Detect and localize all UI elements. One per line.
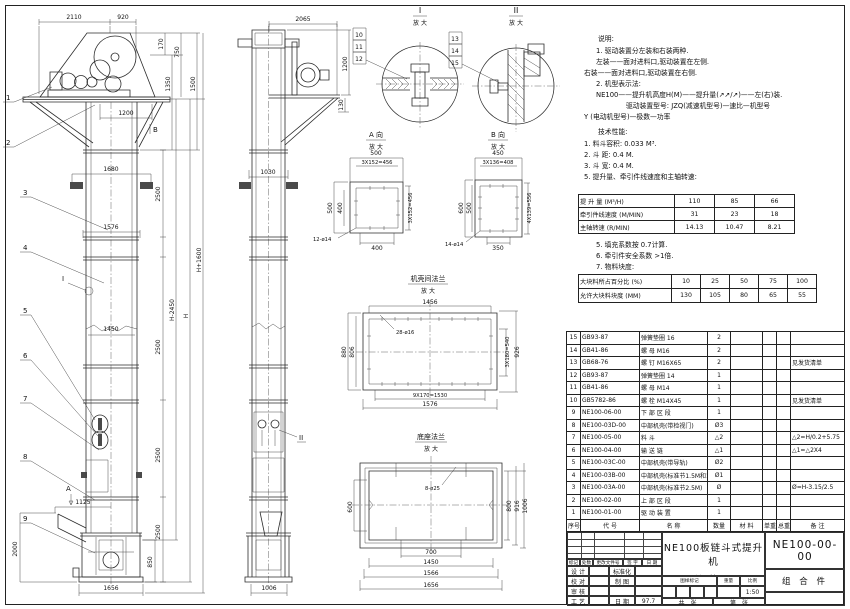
view-a-label: A [66, 485, 71, 493]
balloon: 8 [23, 453, 27, 461]
bom-unit-weight [763, 369, 777, 382]
bom-qty: Ø3 [708, 419, 731, 432]
dim-label: H-2450 [169, 299, 176, 321]
bom-qty: 2 [708, 332, 731, 345]
bom-total-weight [777, 444, 791, 457]
bom-qty: 2 [708, 357, 731, 370]
bom-material [731, 394, 763, 407]
bom-qty: 1 [708, 407, 731, 420]
detail-scale: 放 大 [424, 445, 438, 453]
revision-header: 更改文件号 [593, 559, 623, 566]
bom-total-weight [777, 407, 791, 420]
performance-row: 提 升 量 (M³/H) 110 85 66 [579, 195, 795, 208]
bom-name: 输 送 链 [640, 444, 708, 457]
bom-material [731, 382, 763, 395]
dim-label: 170 [158, 38, 165, 50]
mark-box [704, 586, 717, 598]
role-date: 日 期 [609, 596, 635, 606]
bom-remark [791, 494, 845, 507]
detail-1: I 放 大 10 11 12 [353, 6, 464, 128]
note-line: 驱动装置型号: JZQ(减速机型号)—速比—机型号 [584, 101, 842, 112]
bom-unit-weight [763, 332, 777, 345]
bom-qty: 1 [708, 507, 731, 520]
role-process: 工 艺 [567, 596, 589, 606]
dim-label: 2500 [155, 447, 162, 462]
tech-heading: 技术性能: [598, 127, 627, 138]
bom-name: 螺 钉 M16X65 [640, 357, 708, 370]
bom-code: NE100-05-00 [581, 432, 640, 445]
role-design: 设 计 [567, 566, 589, 576]
bom-total-weight [777, 369, 791, 382]
dim-label: 1006 [261, 585, 276, 592]
lump-value: 25 [701, 275, 730, 289]
dim-label: 3X136=408 [482, 160, 513, 166]
bom-material [731, 432, 763, 445]
bom-qty: △1 [708, 444, 731, 457]
bom-total-weight [777, 344, 791, 357]
detail-title: II [514, 6, 519, 15]
bom-unit-weight [763, 344, 777, 357]
bom-remark: △1=△2X4 [791, 444, 845, 457]
bom-unit-weight [763, 457, 777, 470]
bom-header-row: 序号 代 号 名 称 数量 材 料 单重 总重 备 注 [567, 519, 845, 532]
bom-no: 3 [567, 482, 581, 495]
dim-label: 1656 [423, 582, 438, 589]
dim-label: 9X170=1530 [413, 393, 447, 399]
scale-label: 比例 [740, 576, 765, 586]
balloon: 1 [6, 94, 10, 102]
dim-label: 1576 [103, 224, 118, 231]
note-line: 右装——面对进料口,驱动装置在右侧. [584, 68, 842, 79]
dim-label: 2500 [155, 524, 162, 539]
perf-label: 主轴转速 (R/MIN) [579, 221, 675, 234]
bom-code: GB5782-86 [581, 394, 640, 407]
dim-label: 750 [174, 46, 181, 58]
bom-material [731, 507, 763, 520]
side-view: 2065 1200 130 1030 1006 II [238, 16, 351, 596]
balloon: 5 [23, 307, 27, 315]
bom-code: NE100-06-00 [581, 407, 640, 420]
bom-unit-weight [763, 394, 777, 407]
perf-value: 23 [715, 208, 755, 221]
bom-qty: Ø1 [708, 469, 731, 482]
lump-value: 55 [788, 289, 817, 303]
balloon: 13 [451, 36, 459, 43]
bom-code: NE100-03C-00 [581, 457, 640, 470]
dim-label: 500 [370, 150, 382, 157]
dim-label: 600 [347, 501, 354, 513]
bom-no: 5 [567, 457, 581, 470]
perf-value: 110 [675, 195, 715, 208]
note-line: 左装——面对进料口,驱动装置在左侧. [584, 57, 842, 68]
bom-no: 2 [567, 494, 581, 507]
role-draft: 制 图 [609, 576, 635, 586]
sign-cell [635, 586, 662, 596]
bom-material [731, 357, 763, 370]
bom-total-weight [777, 332, 791, 345]
bom-material [731, 469, 763, 482]
sign-cell [589, 566, 609, 576]
dim-label: 2065 [295, 16, 310, 23]
bom-header: 序号 [567, 519, 581, 532]
bom-name: 弹簧垫圈 14 [640, 369, 708, 382]
detail-title: 底座法兰 [417, 432, 445, 441]
note-line: 5. 填充系数按 0.7计算. [596, 240, 673, 251]
bom-total-weight [777, 432, 791, 445]
bom-header: 代 号 [581, 519, 640, 532]
note-line: 6. 牵引件安全系数 >1倍. [596, 251, 673, 262]
weight-value [717, 586, 740, 598]
dim-label: 1500 [190, 76, 197, 91]
balloon: 4 [23, 244, 28, 252]
bom-material [731, 332, 763, 345]
performance-row: 主轴转速 (R/MIN) 14.13 10.47 8.21 [579, 221, 795, 234]
bom-total-weight [777, 507, 791, 520]
role-standardize: 标准化 [609, 566, 635, 576]
dim-label: 450 [492, 150, 504, 157]
lump-label: 允许大块料块度 (MM) [579, 289, 672, 303]
dim-label: 12-ø14 [313, 237, 332, 243]
dim-label: 1450 [423, 559, 438, 566]
tech-list-2: 5. 填充系数按 0.7计算.6. 牵引件安全系数 >1倍.7. 物料块度: [596, 240, 673, 273]
dim-label: 400 [337, 202, 344, 214]
perf-value: 14.13 [675, 221, 715, 234]
bom-material [731, 494, 763, 507]
revision-header: 标记 [567, 559, 580, 566]
dim-label: 14-ø14 [445, 242, 464, 248]
dim-label: 1200 [342, 56, 349, 71]
bom-name: 弹簧垫圈 16 [640, 332, 708, 345]
dim-label: 1450 [103, 326, 118, 333]
mark-label: 图样标记 [662, 576, 717, 586]
bom-row: 1 NE100-01-00 驱 动 装 置 1 [567, 507, 845, 520]
balloon: 2 [6, 139, 10, 147]
view-title: A 向 [369, 130, 383, 139]
bom-remark: △2=H/0.2+5.75 [791, 432, 845, 445]
dim-label: 1006 [522, 498, 529, 513]
bom-total-weight [777, 457, 791, 470]
lump-value: 50 [730, 275, 759, 289]
bom-code: GB68-76 [581, 357, 640, 370]
bom-qty: △2 [708, 432, 731, 445]
lump-value: 130 [672, 289, 701, 303]
dim-label: 1656 [103, 585, 118, 592]
dim-label: 806 [349, 346, 356, 358]
notes-list: 1. 驱动装置分左装和右装两种.左装——面对进料口,驱动装置在左侧.右装——面对… [584, 46, 842, 123]
balloon: 14 [451, 48, 459, 55]
perf-label: 提 升 量 (M³/H) [579, 195, 675, 208]
note-line: 5. 提升量、牵引件线速度和主轴转速: [584, 172, 842, 183]
dim-label: 28-ø16 [396, 330, 414, 336]
detail-ii-marker-label: II [299, 434, 303, 442]
lump-row: 允许大块料块度 (MM) 130 105 80 65 55 [579, 289, 817, 303]
bom-no: 4 [567, 469, 581, 482]
bom-material [731, 444, 763, 457]
bom-qty: 1 [708, 494, 731, 507]
balloon: 3 [23, 189, 27, 197]
bom-header: 名 称 [640, 519, 708, 532]
bom-no: 11 [567, 382, 581, 395]
bom-qty: 1 [708, 382, 731, 395]
balloon: 15 [451, 60, 459, 67]
bom-code: NE100-03B-00 [581, 469, 640, 482]
bom-qty: Ø2 [708, 457, 731, 470]
drawing-sheet: 2110 920 170 750 1350 1500 1200 1680 250… [0, 0, 850, 609]
dim-label: 800 [506, 500, 513, 512]
perf-value: 8.21 [755, 221, 795, 234]
perf-value: 66 [755, 195, 795, 208]
bom-code: NE100-02-00 [581, 494, 640, 507]
dim-label: 2110 [66, 14, 81, 21]
bom-remark [791, 332, 845, 345]
bom-qty: 1 [708, 369, 731, 382]
bom-unit-weight [763, 482, 777, 495]
drawing-title-line1: NE100板链斗式提升机 [663, 540, 764, 568]
note-line: 3. 斗 宽: 0.4 M. [584, 161, 842, 172]
bom-qty: 1 [708, 394, 731, 407]
sign-cell [635, 566, 662, 576]
lump-row: 大块料所占百分比 (%) 10 25 50 75 100 [579, 275, 817, 289]
bom-remark [791, 369, 845, 382]
sheet-number: 第 张 [713, 598, 765, 606]
bom-total-weight [777, 482, 791, 495]
balloon: 7 [23, 395, 27, 403]
bom-row: 13 GB68-76 螺 钉 M16X65 2 见发货清单 [567, 357, 845, 370]
view-title: B 向 [491, 130, 505, 139]
dim-label: H [183, 314, 190, 319]
bom-no: 14 [567, 344, 581, 357]
dim-label: 1566 [423, 570, 438, 577]
bom-total-weight [777, 419, 791, 432]
sign-cell [589, 576, 609, 586]
bom-row: 11 GB41-86 螺 母 M14 1 [567, 382, 845, 395]
bom-remark [791, 507, 845, 520]
bom-name: 中部机壳(标准节2.5M) [640, 482, 708, 495]
note-line: 1. 料斗容积: 0.033 M³. [584, 139, 842, 150]
sign-cell [589, 586, 609, 596]
bom-no: 15 [567, 332, 581, 345]
balloon: 12 [355, 56, 363, 63]
note-line: 2. 机型表示法: [584, 79, 842, 90]
dim-label: 1576 [422, 401, 437, 408]
bom-remark [791, 382, 845, 395]
bom-code: NE100-03D-00 [581, 419, 640, 432]
sheet-count: 共 张 [662, 598, 713, 606]
balloon: 6 [23, 352, 28, 360]
detail-scale: 放 大 [413, 19, 427, 27]
bom-remark [791, 419, 845, 432]
bom-total-weight [777, 394, 791, 407]
bom-code: GB93-87 [581, 369, 640, 382]
bom-row: 5 NE100-03C-00 中部机壳(带导轨) Ø2 [567, 457, 845, 470]
lump-label: 大块料所占百分比 (%) [579, 275, 672, 289]
bom-code: NE100-04-00 [581, 444, 640, 457]
dim-label: 130 [338, 99, 345, 111]
lump-value: 80 [730, 289, 759, 303]
bom-no: 9 [567, 407, 581, 420]
bom-name: 螺 母 M14 [640, 382, 708, 395]
dim-label: 926 [514, 346, 521, 358]
bom-unit-weight [763, 419, 777, 432]
dim-label: 350 [492, 245, 504, 252]
dim-label: 850 [147, 556, 154, 568]
dim-label: 920 [117, 14, 129, 21]
bom-header: 备 注 [791, 519, 845, 532]
detail-scale: 放 大 [509, 19, 523, 27]
notes-heading: 说明: [598, 34, 614, 45]
bom-unit-weight [763, 407, 777, 420]
view-b-label: B [153, 126, 158, 134]
bom-code: GB93-87 [581, 332, 640, 345]
balloon: 11 [355, 44, 363, 51]
bom-row: 14 GB41-86 螺 母 M16 2 [567, 344, 845, 357]
bom-no: 6 [567, 444, 581, 457]
mark-box [662, 586, 676, 598]
perf-value: 85 [715, 195, 755, 208]
dim-label: 400 [371, 245, 383, 252]
bom-remark [791, 469, 845, 482]
bom-unit-weight [763, 507, 777, 520]
note-line: 2. 斗 距: 0.4 M. [584, 150, 842, 161]
bom-row: 4 NE100-03B-00 中部机壳(标准节1.5M和1M) Ø1 [567, 469, 845, 482]
dim-label: 500 [466, 202, 473, 214]
dim-label: 1125 [75, 499, 90, 506]
dim-label: 4X139=556 [527, 192, 533, 223]
bom-unit-weight [763, 444, 777, 457]
bom-no: 13 [567, 357, 581, 370]
bom-total-weight [777, 494, 791, 507]
bom-table: 15 GB93-87 弹簧垫圈 16 2 14 GB41-86 螺 母 M16 … [566, 331, 845, 532]
bom-no: 12 [567, 369, 581, 382]
bom-name: 中部机壳(标准节1.5M和1M) [640, 469, 708, 482]
bom-total-weight [777, 357, 791, 370]
bom-unit-weight [763, 382, 777, 395]
perf-value: 18 [755, 208, 795, 221]
bom-remark [791, 457, 845, 470]
bom-row: 3 NE100-03A-00 中部机壳(标准节2.5M) Ø Ø=H-3.15/… [567, 482, 845, 495]
detail-title: I [419, 6, 421, 15]
lump-value: 65 [759, 289, 788, 303]
dim-label: 8-ø25 [425, 486, 440, 492]
dim-label: 3X180=540 [505, 336, 511, 367]
perf-value: 10.47 [715, 221, 755, 234]
scale-value: 1:50 [740, 586, 765, 598]
bom-remark [791, 407, 845, 420]
front-view: 2110 920 170 750 1350 1500 1200 1680 250… [3, 14, 205, 596]
balloon: 10 [355, 32, 363, 39]
bom-code: NE100-03A-00 [581, 482, 640, 495]
bom-total-weight [777, 469, 791, 482]
weight-label: 重量 [717, 576, 740, 586]
view-a: A 向 放 大 500 3X152=456 500 400 3X152=456 … [313, 130, 414, 252]
base-flange-detail: 底座法兰 放 大 8-ø25 600 800 916 1006 700 1450… [347, 432, 529, 591]
view-b: B 向 放 大 450 3X136=408 600 500 4X139=556 … [445, 130, 533, 252]
bom-name: 上 部 区 段 [640, 494, 708, 507]
dim-label: 2500 [155, 186, 162, 201]
bom-row: 15 GB93-87 弹簧垫圈 16 2 [567, 332, 845, 345]
bom-code: GB41-86 [581, 382, 640, 395]
dim-label: 3X152=456 [408, 192, 414, 223]
bom-header: 总重 [777, 519, 791, 532]
revision-header: 日 期 [642, 559, 662, 566]
bom-remark [791, 344, 845, 357]
bom-row: 6 NE100-04-00 输 送 链 △1 △1=△2X4 [567, 444, 845, 457]
revision-header: 签 字 [623, 559, 642, 566]
bom-material [731, 407, 763, 420]
balloon: 9 [23, 515, 27, 523]
dim-label: 500 [327, 202, 334, 214]
bom-material [731, 482, 763, 495]
bom-name: 料 斗 [640, 432, 708, 445]
dim-label: 1030 [260, 169, 275, 176]
bom-qty: Ø [708, 482, 731, 495]
lump-value: 10 [672, 275, 701, 289]
bom-qty: 2 [708, 344, 731, 357]
dim-label: 3X152=456 [361, 160, 392, 166]
detail-scale: 放 大 [421, 287, 435, 295]
bom-remark: 见发货清单 [791, 394, 845, 407]
sign-cell [635, 576, 662, 586]
note-line: NE100——提升机高度H(M)——提升量(↗↗/↗)——左(右)装. [584, 90, 842, 101]
bom-name: 螺 母 M16 [640, 344, 708, 357]
sign-cell [589, 596, 609, 606]
mark-box [690, 586, 704, 598]
bom-material [731, 369, 763, 382]
role-check: 校 对 [567, 576, 589, 586]
detail-title: 机壳间法兰 [411, 274, 446, 283]
bom-code: GB41-86 [581, 344, 640, 357]
bom-header: 数量 [708, 519, 731, 532]
drawing-number: NE100-00-00 [765, 532, 845, 569]
tech-list-1: 1. 料斗容积: 0.033 M³.2. 斗 距: 0.4 M.3. 斗 宽: … [584, 139, 842, 183]
dim-label: 880 [341, 346, 348, 358]
bom-no: 1 [567, 507, 581, 520]
bom-unit-weight [763, 432, 777, 445]
empty-cell [765, 592, 845, 606]
dim-label: 600 [458, 202, 465, 214]
dim-label: 1680 [103, 166, 118, 173]
dim-label: 1350 [165, 76, 172, 91]
detail-i-marker-label: I [62, 275, 64, 283]
lump-value: 100 [788, 275, 817, 289]
bom-no: 7 [567, 432, 581, 445]
casing-flange-detail: 机壳间法兰 放 大 1456 28-ø16 880 806 3X180=540 … [341, 274, 521, 410]
dim-label: 1456 [422, 299, 437, 306]
lump-value: 75 [759, 275, 788, 289]
lump-size-table: 大块料所占百分比 (%) 10 25 50 75 100 允许大块料块度 (MM… [578, 274, 817, 303]
dim-label: 2000 [12, 541, 19, 556]
dim-label: 916 [514, 500, 521, 512]
mark-box [676, 586, 690, 598]
note-line: Y (电动机型号)—极数—功率 [584, 112, 842, 123]
perf-value: 31 [675, 208, 715, 221]
bom-row: 8 NE100-03D-00 中部机壳(带检视门) Ø3 [567, 419, 845, 432]
performance-table: 提 升 量 (M³/H) 110 85 66 牵引件线速度 (M/MIN) 31… [578, 194, 795, 234]
bom-material [731, 344, 763, 357]
bom-unit-weight [763, 357, 777, 370]
bom-remark: 见发货清单 [791, 357, 845, 370]
note-line: 7. 物料块度: [596, 262, 673, 273]
bom-name: 下 部 区 段 [640, 407, 708, 420]
bom-name: 中部机壳(带检视门) [640, 419, 708, 432]
bom-unit-weight [763, 494, 777, 507]
note-line: 1. 驱动装置分左装和右装两种. [584, 46, 842, 57]
bom-code: NE100-01-00 [581, 507, 640, 520]
bom-no: 8 [567, 419, 581, 432]
bom-name: 中部机壳(带导轨) [640, 457, 708, 470]
bom-material [731, 457, 763, 470]
date-value: 97.7 [635, 596, 662, 606]
